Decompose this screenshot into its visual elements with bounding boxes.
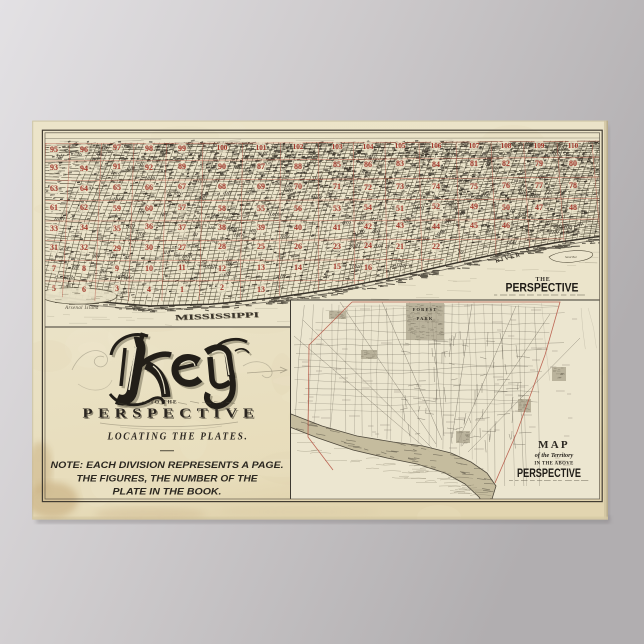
svg-text:80: 80 [569, 159, 577, 168]
svg-text:50: 50 [502, 203, 510, 212]
svg-text:TO THE: TO THE [150, 400, 178, 406]
svg-text:70: 70 [294, 182, 302, 191]
svg-text:MAP: MAP [538, 439, 570, 451]
svg-text:88: 88 [294, 162, 302, 171]
svg-text:74: 74 [432, 182, 440, 191]
svg-text:99: 99 [178, 144, 186, 153]
svg-text:47: 47 [535, 203, 543, 212]
svg-text:84: 84 [432, 160, 440, 169]
svg-text:37: 37 [178, 223, 186, 232]
svg-text:76: 76 [502, 181, 510, 190]
svg-text:52: 52 [432, 202, 440, 211]
svg-text:46: 46 [502, 221, 510, 230]
svg-text:61: 61 [50, 203, 58, 212]
svg-text:105: 105 [395, 142, 406, 150]
svg-text:79: 79 [535, 159, 543, 168]
svg-text:106: 106 [431, 142, 442, 150]
svg-text:10: 10 [145, 264, 153, 273]
svg-text:31: 31 [50, 243, 58, 252]
svg-text:91: 91 [113, 162, 121, 171]
svg-text:96: 96 [80, 145, 88, 154]
svg-text:15: 15 [333, 262, 341, 271]
svg-text:7: 7 [52, 264, 56, 273]
svg-text:78: 78 [569, 181, 577, 190]
svg-text:of the Territory: of the Territory [535, 452, 574, 459]
svg-text:NOTE: EACH DIVISION REPRESENTS: NOTE: EACH DIVISION REPRESENTS A PAGE. [51, 460, 284, 471]
svg-text:43: 43 [396, 221, 404, 230]
svg-text:81: 81 [470, 159, 478, 168]
svg-text:103: 103 [332, 143, 343, 151]
svg-text:57: 57 [178, 203, 186, 212]
svg-text:93: 93 [50, 163, 58, 172]
svg-text:33: 33 [50, 224, 58, 233]
svg-text:97: 97 [113, 143, 121, 152]
svg-text:49: 49 [470, 202, 478, 211]
svg-text:56: 56 [294, 204, 302, 213]
svg-text:3: 3 [115, 284, 119, 293]
svg-text:77: 77 [535, 181, 543, 190]
svg-text:85: 85 [333, 160, 341, 169]
svg-text:42: 42 [364, 222, 372, 231]
svg-text:101: 101 [256, 144, 267, 152]
svg-text:30: 30 [145, 243, 153, 252]
svg-text:35: 35 [113, 224, 121, 233]
svg-text:102: 102 [293, 143, 304, 151]
svg-text:9: 9 [115, 264, 119, 273]
svg-text:13: 13 [257, 263, 265, 272]
svg-text:26: 26 [294, 242, 302, 251]
svg-text:71: 71 [333, 182, 341, 191]
svg-text:83: 83 [396, 159, 404, 168]
svg-text:89: 89 [178, 162, 186, 171]
svg-text:38: 38 [218, 223, 226, 232]
svg-text:69: 69 [257, 182, 265, 191]
svg-text:LOCATING THE PLATES.: LOCATING THE PLATES. [107, 432, 249, 443]
svg-text:12: 12 [218, 264, 226, 273]
svg-text:86: 86 [364, 160, 372, 169]
svg-text:62: 62 [80, 203, 88, 212]
svg-text:104: 104 [363, 143, 374, 151]
svg-text:6: 6 [82, 285, 86, 294]
svg-text:45: 45 [470, 221, 478, 230]
svg-text:25: 25 [257, 242, 265, 251]
svg-text:72: 72 [364, 183, 372, 192]
svg-text:36: 36 [145, 222, 153, 231]
svg-text:4: 4 [147, 285, 151, 294]
svg-text:34: 34 [80, 223, 88, 232]
svg-text:23: 23 [333, 242, 341, 251]
svg-text:PARK: PARK [417, 316, 434, 321]
svg-text:92: 92 [145, 163, 153, 172]
svg-text:87: 87 [257, 162, 265, 171]
svg-text:39: 39 [257, 223, 265, 232]
svg-text:PERSPECTIVE: PERSPECTIVE [83, 407, 260, 422]
svg-text:66: 66 [145, 183, 153, 192]
svg-text:48: 48 [569, 203, 577, 212]
svg-text:PERSPECTIVE: PERSPECTIVE [517, 466, 581, 480]
svg-text:28: 28 [218, 242, 226, 251]
svg-text:FOREST: FOREST [413, 307, 438, 312]
svg-text:55: 55 [257, 204, 265, 213]
svg-text:Arsenal Island: Arsenal Island [64, 306, 99, 311]
svg-text:54: 54 [364, 203, 372, 212]
svg-text:Sand Bar: Sand Bar [565, 255, 578, 259]
svg-text:11: 11 [178, 263, 186, 272]
svg-text:PERSPECTIVE: PERSPECTIVE [506, 281, 579, 295]
svg-text:13: 13 [257, 285, 265, 294]
svg-text:67: 67 [178, 182, 186, 191]
svg-text:68: 68 [218, 182, 226, 191]
svg-text:53: 53 [333, 204, 341, 213]
svg-text:THE FIGURES, THE NUMBER OF THE: THE FIGURES, THE NUMBER OF THE [77, 474, 259, 485]
svg-text:110: 110 [568, 142, 579, 150]
svg-text:27: 27 [178, 243, 186, 252]
svg-text:21: 21 [396, 242, 404, 251]
svg-text:109: 109 [534, 142, 545, 150]
svg-text:108: 108 [501, 142, 512, 150]
svg-text:107: 107 [469, 142, 480, 150]
svg-text:63: 63 [50, 184, 58, 193]
svg-text:16: 16 [364, 263, 372, 272]
svg-text:1: 1 [180, 285, 184, 294]
svg-text:58: 58 [218, 204, 226, 213]
svg-text:24: 24 [364, 241, 372, 250]
svg-text:73: 73 [396, 182, 404, 191]
svg-text:PLATE IN THE BOOK.: PLATE IN THE BOOK. [113, 487, 222, 498]
svg-text:40: 40 [294, 223, 302, 232]
svg-text:65: 65 [113, 183, 121, 192]
svg-text:44: 44 [432, 222, 440, 231]
svg-text:14: 14 [294, 263, 302, 272]
svg-text:2: 2 [220, 283, 224, 292]
svg-text:95: 95 [50, 145, 58, 154]
svg-text:82: 82 [502, 159, 510, 168]
svg-text:100: 100 [217, 144, 228, 152]
svg-text:98: 98 [145, 144, 153, 153]
svg-text:32: 32 [80, 243, 88, 252]
svg-text:94: 94 [80, 164, 88, 173]
svg-text:51: 51 [396, 204, 404, 213]
svg-text:75: 75 [470, 182, 478, 191]
svg-text:64: 64 [80, 184, 88, 193]
svg-text:60: 60 [145, 204, 153, 213]
svg-text:22: 22 [432, 242, 440, 251]
svg-text:8: 8 [82, 264, 86, 273]
svg-text:5: 5 [52, 284, 56, 293]
svg-text:90: 90 [218, 162, 226, 171]
svg-text:59: 59 [113, 204, 121, 213]
svg-text:29: 29 [113, 244, 121, 253]
svg-text:41: 41 [333, 223, 341, 232]
